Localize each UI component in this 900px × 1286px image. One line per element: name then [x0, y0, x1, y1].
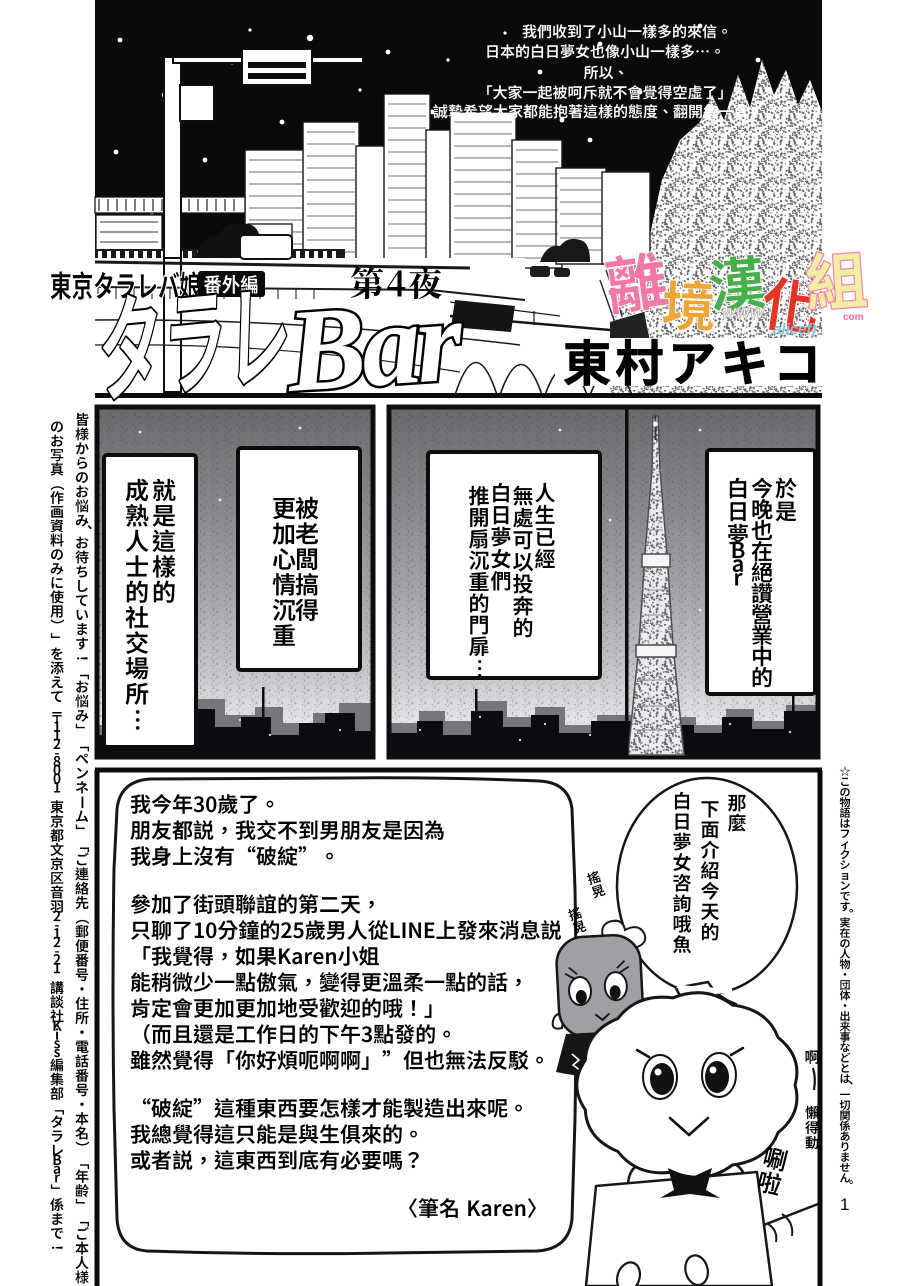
svg-text:1: 1 — [840, 1195, 849, 1214]
svg-text:Bar: Bar — [281, 274, 468, 417]
svg-text:alicef): alicef) — [773, 321, 816, 338]
svg-text:com: com — [843, 312, 864, 323]
svg-text:www.: www. — [722, 302, 768, 322]
